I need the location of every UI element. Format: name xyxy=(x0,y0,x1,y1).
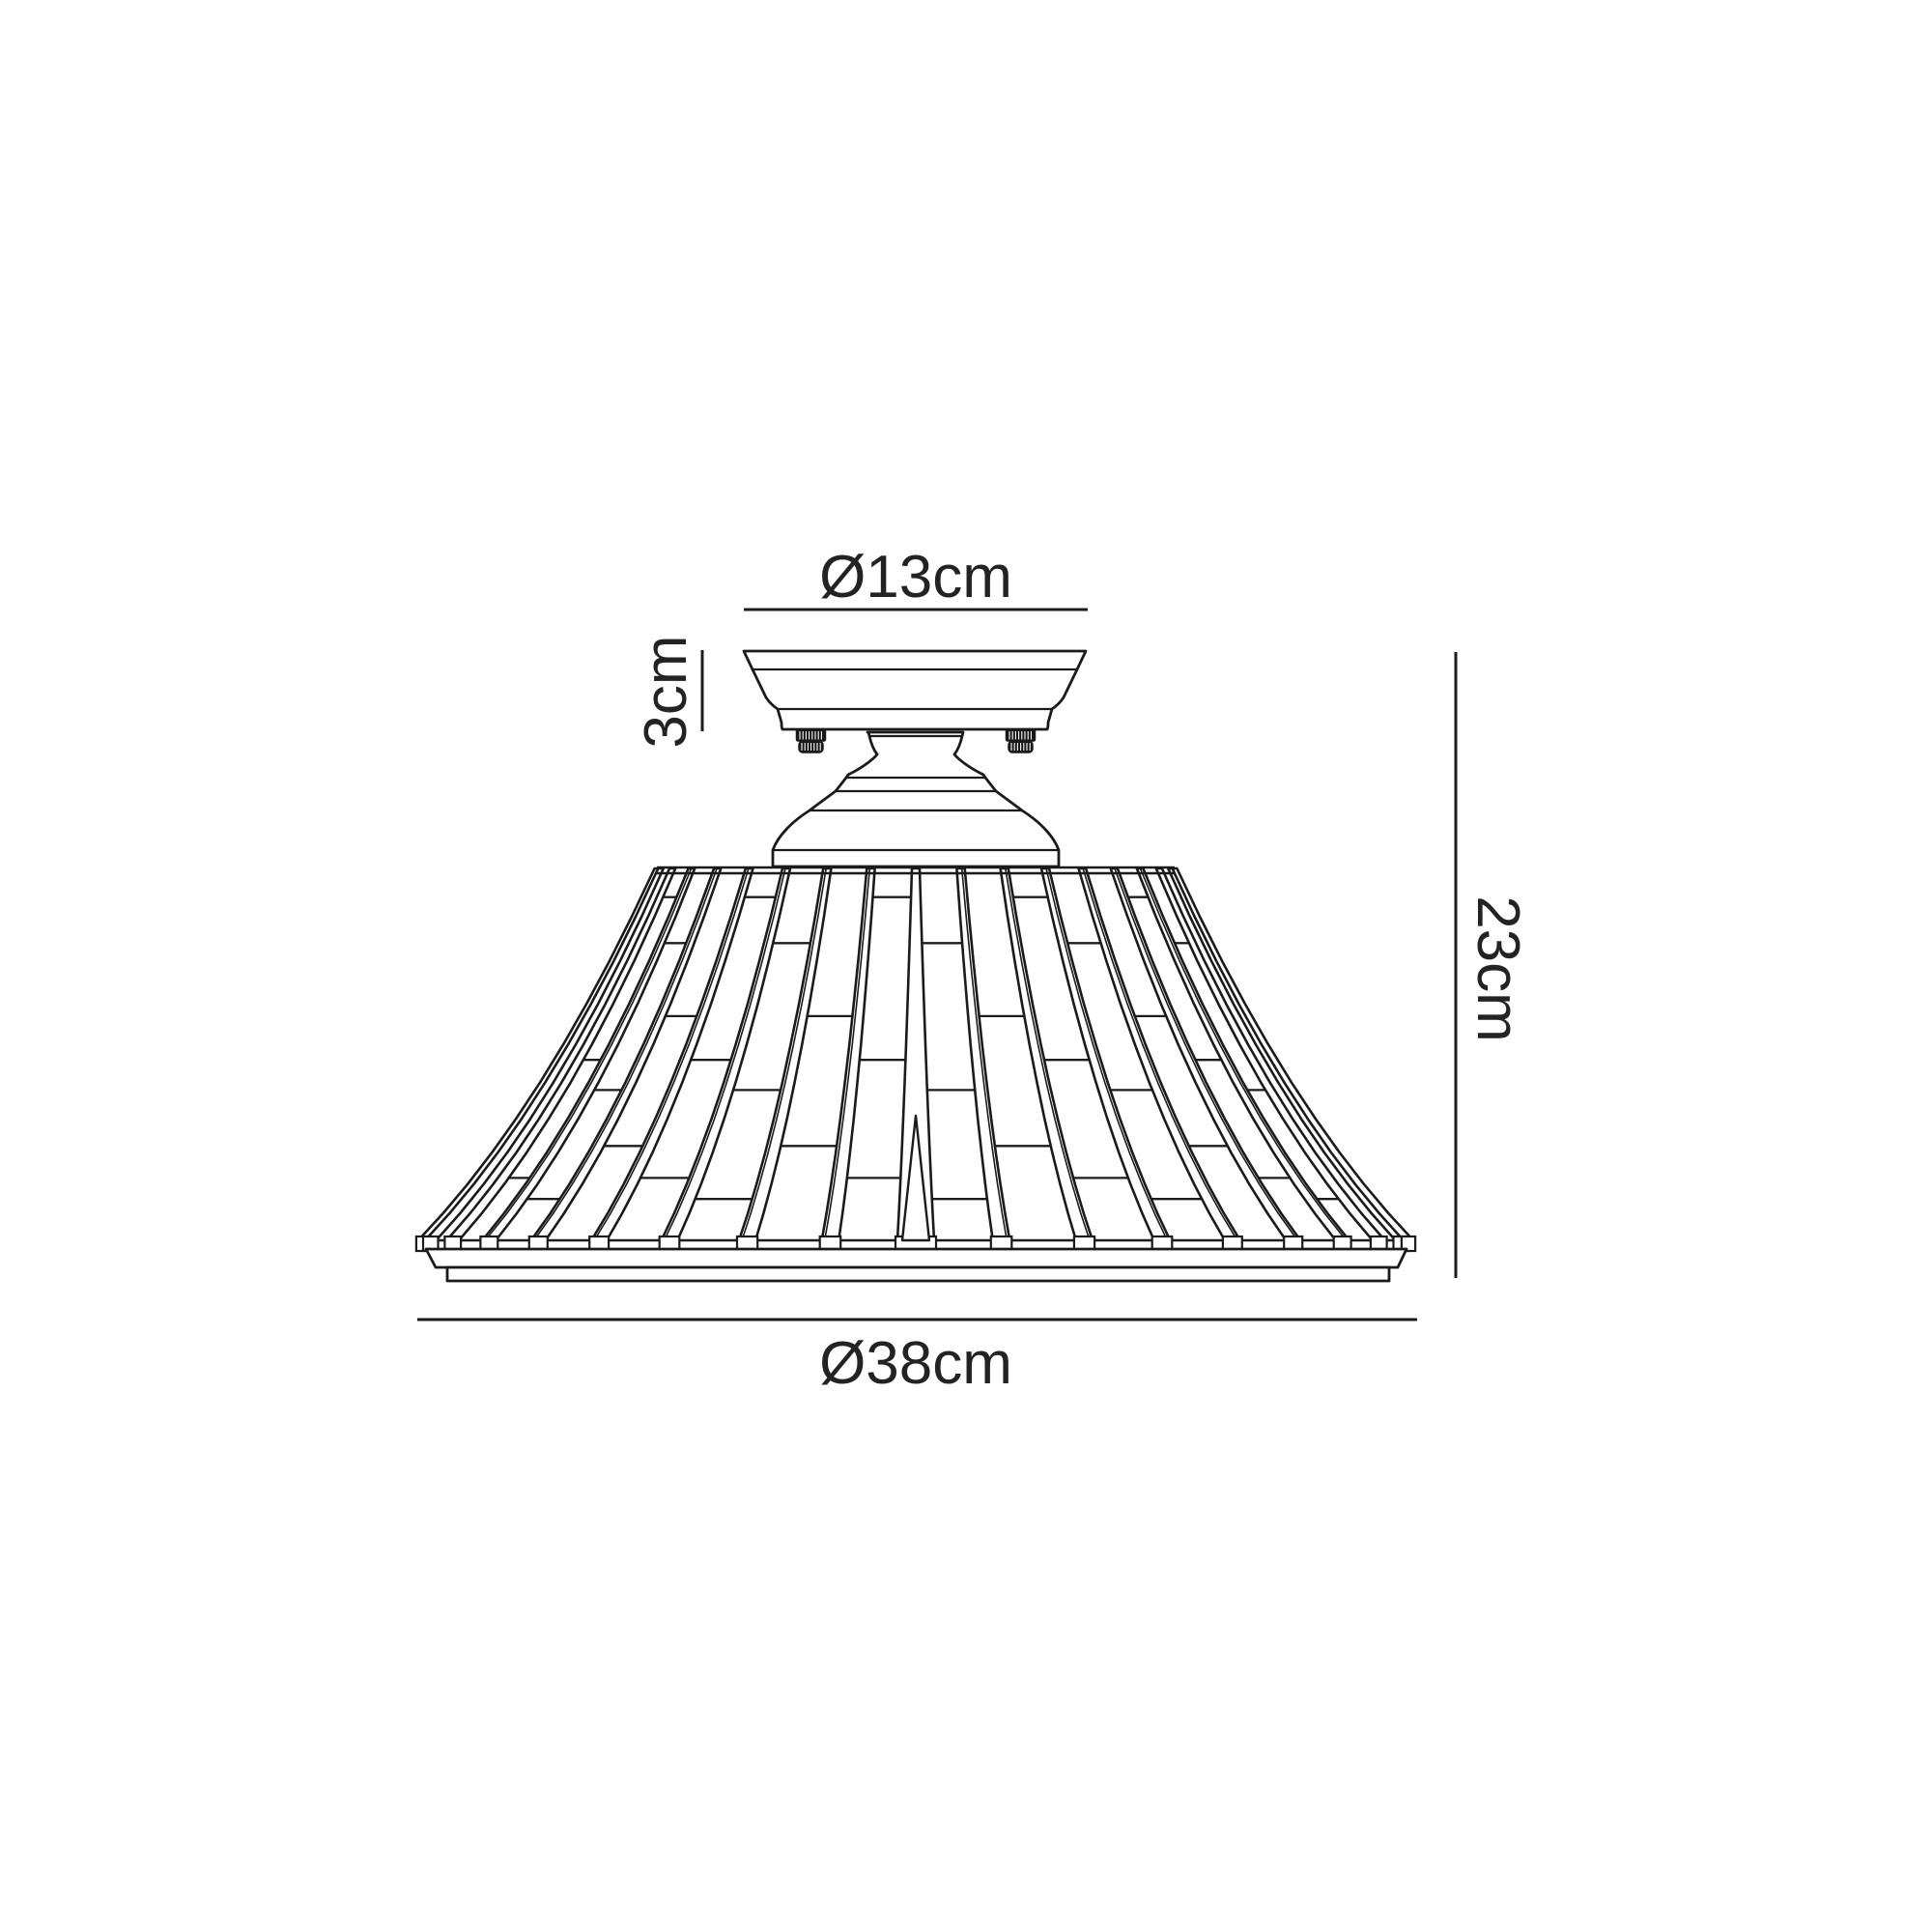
shade-rib-edge-line xyxy=(485,868,691,1240)
rim-band-lower xyxy=(447,1267,1389,1281)
fixture-drawing xyxy=(416,651,1415,1281)
dim-label-canopy-height: 3cm xyxy=(633,635,699,748)
shade-rib-edge-line xyxy=(1140,868,1346,1240)
shade-rib xyxy=(822,868,875,1240)
shade-rib xyxy=(956,868,1009,1240)
ceiling-light-dimension-diagram: Ø13cm 3cm 23cm Ø38cm xyxy=(0,0,1932,1932)
ceiling-canopy xyxy=(744,651,1086,729)
shade-rib xyxy=(1137,868,1350,1240)
dim-label-canopy-diameter: Ø13cm xyxy=(819,544,1012,611)
dim-label-shade-diameter: Ø38cm xyxy=(819,1330,1012,1397)
canopy-outline xyxy=(744,651,1086,729)
shade xyxy=(416,867,1415,1251)
dim-label-overall-height: 23cm xyxy=(1464,895,1531,1042)
diagram-canvas: Ø13cm 3cm 23cm Ø38cm xyxy=(0,0,1932,1932)
shade-rib xyxy=(482,868,695,1240)
rim-band-upper xyxy=(426,1249,1406,1267)
shade-bottom-rim xyxy=(426,1249,1406,1281)
